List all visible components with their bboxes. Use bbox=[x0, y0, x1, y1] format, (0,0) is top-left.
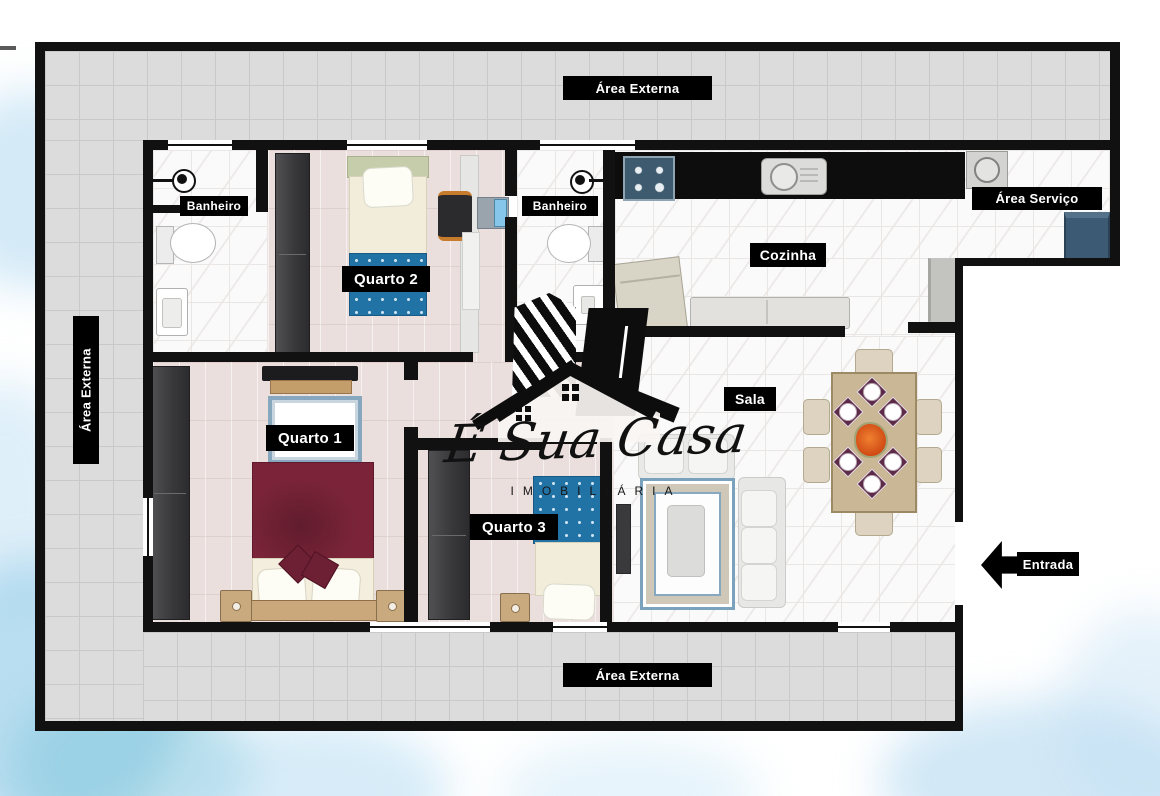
coffee-table bbox=[667, 505, 705, 577]
toilet-icon bbox=[547, 224, 591, 263]
label-area-externa-top: Área Externa bbox=[563, 76, 712, 100]
window bbox=[370, 622, 490, 632]
tall-cabinet bbox=[928, 258, 958, 322]
wardrobe bbox=[428, 450, 470, 620]
outer-wall-top bbox=[35, 42, 1120, 51]
label-quarto-2: Quarto 2 bbox=[342, 266, 430, 292]
quarto1-right-wall bbox=[404, 427, 418, 622]
sofa-cushion bbox=[741, 490, 777, 527]
dining-chair bbox=[915, 399, 942, 435]
quarto2-right-wall bbox=[505, 150, 517, 196]
window bbox=[347, 140, 427, 150]
outer-wall-right bbox=[1110, 42, 1120, 266]
floor-plan: Área Externa Área Externa Área Externa B… bbox=[0, 0, 1160, 796]
tv-shelf bbox=[270, 380, 352, 394]
label-banheiro-2: Banheiro bbox=[522, 196, 598, 216]
nightstand bbox=[500, 593, 530, 622]
nightstand bbox=[220, 590, 252, 622]
window bbox=[838, 622, 890, 632]
servico-exterior-wall bbox=[955, 258, 1120, 266]
bed-pillow bbox=[362, 166, 414, 209]
flower-centerpiece bbox=[856, 424, 886, 456]
sofa-cushion bbox=[741, 564, 777, 601]
label-entrada: Entrada bbox=[1017, 552, 1079, 576]
quarto2-right-wall bbox=[505, 217, 517, 362]
inner-wall-bottom bbox=[143, 622, 370, 632]
area-externa-bottom-floor bbox=[143, 632, 955, 722]
sofa-cushion bbox=[741, 527, 777, 564]
kitchen-island-line bbox=[766, 300, 768, 324]
inner-wall-bottom bbox=[490, 622, 553, 632]
inner-wall-top bbox=[635, 140, 1112, 150]
plate-setting bbox=[834, 398, 862, 426]
bedroom-row-wall bbox=[513, 352, 615, 362]
inner-wall-left bbox=[143, 140, 153, 498]
inner-wall-top bbox=[232, 140, 347, 150]
watercolor-blob bbox=[1060, 610, 1160, 796]
inner-wall-bottom bbox=[607, 622, 838, 632]
kitchen-island bbox=[690, 297, 850, 329]
window bbox=[553, 622, 607, 632]
quarto1-right-wall bbox=[404, 362, 418, 380]
plate-setting bbox=[858, 470, 886, 498]
label-area-servico: Área Serviço bbox=[972, 187, 1102, 210]
shower-icon bbox=[172, 169, 196, 193]
wardrobe bbox=[150, 366, 190, 620]
toilet-icon bbox=[170, 223, 216, 263]
wardrobe bbox=[275, 153, 310, 355]
label-area-externa-bottom: Área Externa bbox=[563, 663, 712, 687]
label-cozinha: Cozinha bbox=[750, 243, 826, 267]
kitchen-sink-drain bbox=[800, 168, 818, 182]
cabinet-white bbox=[462, 232, 480, 310]
inner-wall-left bbox=[143, 556, 153, 632]
loveseat-cushion bbox=[644, 438, 684, 474]
dining-chair bbox=[803, 447, 830, 483]
label-quarto-1: Quarto 1 bbox=[266, 425, 354, 451]
double-bed-blanket bbox=[252, 462, 374, 560]
bathroom-sink-basin bbox=[162, 298, 182, 328]
shower-tray-handle bbox=[581, 296, 595, 314]
window bbox=[143, 498, 153, 556]
inner-wall-bottom bbox=[890, 622, 963, 632]
cozinha-sala-wall-stub bbox=[908, 322, 958, 333]
washing-machine-icon bbox=[1064, 212, 1110, 262]
label-sala: Sala bbox=[724, 387, 776, 411]
tv-wall-panel bbox=[616, 504, 631, 574]
bed-pillow bbox=[542, 583, 595, 621]
quarto3-right-wall bbox=[600, 438, 612, 622]
loveseat-cushion bbox=[688, 438, 728, 474]
banheiro1-right-wall bbox=[256, 150, 268, 212]
laundry-sink-bowl bbox=[974, 157, 1000, 183]
dining-chair bbox=[915, 447, 942, 483]
shower-icon bbox=[570, 170, 594, 194]
dining-chair bbox=[803, 399, 830, 435]
window bbox=[168, 140, 232, 150]
watercolor-blob bbox=[500, 740, 760, 796]
label-quarto-3: Quarto 3 bbox=[470, 514, 558, 540]
outer-wall-bottom bbox=[35, 721, 963, 731]
sala-right-wall-upper bbox=[955, 258, 963, 522]
bed-footboard bbox=[246, 600, 380, 621]
quarto3-top-wall bbox=[418, 438, 543, 450]
tv-icon bbox=[262, 366, 358, 381]
kitchen-sink-bowl bbox=[770, 163, 798, 191]
window bbox=[540, 140, 635, 150]
cozinha-sala-wall bbox=[613, 326, 845, 337]
label-area-externa-left: Área Externa bbox=[73, 316, 99, 464]
bedroom-row-wall bbox=[143, 352, 473, 362]
outer-wall-left bbox=[35, 42, 45, 731]
cooktop-icon bbox=[623, 156, 675, 201]
plate-setting bbox=[879, 398, 907, 426]
edge-mark bbox=[0, 46, 16, 50]
entrada-arrow-icon bbox=[981, 541, 1017, 589]
label-banheiro-1: Banheiro bbox=[180, 196, 248, 216]
quarto3-door-line bbox=[545, 442, 597, 444]
inner-wall-top bbox=[427, 140, 540, 150]
